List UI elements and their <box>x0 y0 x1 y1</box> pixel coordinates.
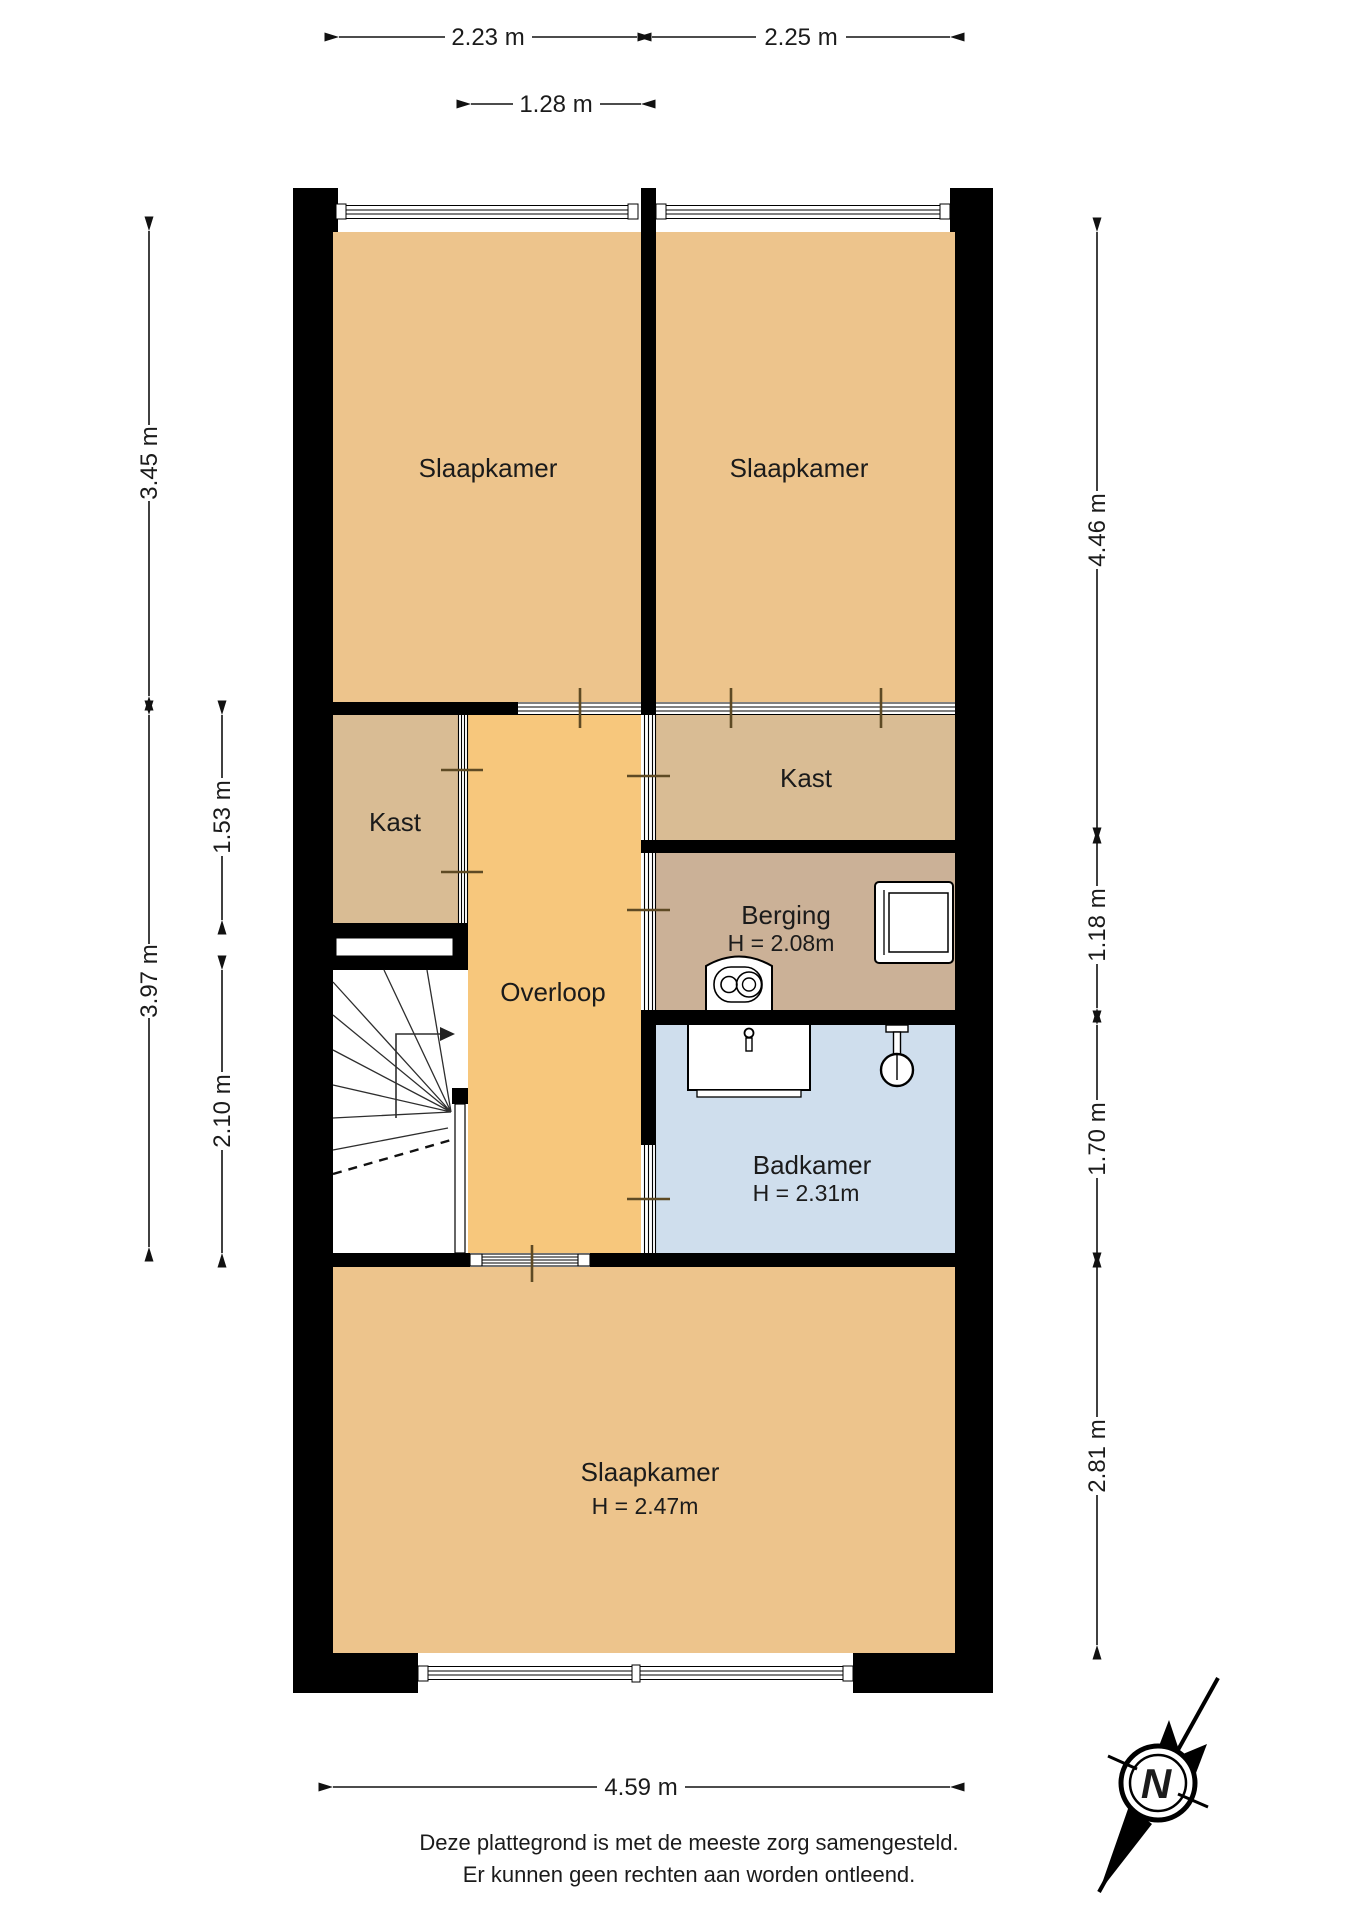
dim-right-top: 4.46 m <box>1084 493 1111 566</box>
wall-berging-north <box>641 840 955 853</box>
window-glazing <box>666 206 940 219</box>
wall-bottom-right <box>853 1653 993 1693</box>
label-berging-height: H = 2.08m <box>728 930 835 956</box>
dim-top-left: 2.23 m <box>451 24 524 51</box>
wall-left <box>293 188 333 1693</box>
window-cap <box>418 1666 428 1681</box>
dim-left-inner-bottom: 2.10 m <box>209 1074 236 1147</box>
window-glazing <box>346 206 628 219</box>
dim-top-right: 2.25 m <box>764 24 837 51</box>
wall-top-left <box>293 188 338 232</box>
window-slaapkamer-3 <box>418 1665 853 1682</box>
window-mullion <box>632 1665 640 1682</box>
window-slaapkamer-2 <box>656 204 950 219</box>
door-slaapkamer-3 <box>470 1254 590 1266</box>
toilet-tank <box>886 1025 908 1032</box>
wall-niche <box>336 938 453 956</box>
window-cap <box>628 204 638 219</box>
label-badkamer-height: H = 2.31m <box>753 1180 860 1206</box>
dim-right-berging: 1.18 m <box>1084 888 1111 961</box>
partition-kast-links <box>459 715 468 923</box>
label-slaapkamer-1: Slaapkamer <box>419 453 558 483</box>
window-slaapkamer-1 <box>336 204 638 219</box>
window-cap <box>656 204 666 219</box>
label-slaapkamer-3-height: H = 2.47m <box>592 1493 699 1519</box>
footer: Deze plattegrond is met de meeste zorg s… <box>419 1830 958 1887</box>
wall-right <box>955 188 993 1693</box>
label-slaapkamer-2: Slaapkamer <box>730 453 869 483</box>
dim-top-overloop: 1.28 m <box>519 91 592 118</box>
label-badkamer: Badkamer <box>753 1150 872 1180</box>
stair-handrail <box>455 1104 465 1253</box>
footer-line-2: Er kunnen geen rechten aan worden ontlee… <box>463 1862 916 1887</box>
partition-overloop-kast <box>645 715 656 840</box>
partition-overloop-berging <box>645 853 656 1010</box>
wall-berging-south <box>641 1010 955 1025</box>
wall-hall-south-left <box>333 1253 470 1267</box>
wall-hall-south-right <box>590 1253 955 1267</box>
sink-plinth <box>697 1090 801 1097</box>
faucet-stem <box>746 1038 752 1051</box>
window-cap <box>336 204 346 219</box>
door-cap <box>470 1254 482 1266</box>
wall-bedroom1-south <box>333 702 518 715</box>
faucet-icon <box>745 1029 754 1038</box>
wall-top-right <box>950 188 993 232</box>
stairwell-area <box>333 970 464 1253</box>
floor-plan-drawing: Slaapkamer Slaapkamer Kast Kast Overloop… <box>0 0 1358 1920</box>
window-cap <box>843 1666 853 1681</box>
label-kast-rechts: Kast <box>780 763 833 793</box>
partition-kast-rechts-front <box>656 703 955 715</box>
door-cap <box>578 1254 590 1266</box>
dim-left-outer-bottom: 3.97 m <box>136 944 163 1017</box>
washer <box>875 882 953 963</box>
window-cap <box>940 204 950 219</box>
mv-unit <box>706 957 772 1012</box>
label-berging: Berging <box>741 900 831 930</box>
dim-right-bottom: 2.81 m <box>1084 1419 1111 1492</box>
footer-line-1: Deze plattegrond is met de meeste zorg s… <box>419 1830 958 1855</box>
bathroom-sink <box>688 1024 810 1097</box>
compass-icon: N <box>1099 1678 1218 1892</box>
wall-between-bedrooms <box>641 188 656 715</box>
dim-right-badkamer: 1.70 m <box>1084 1102 1111 1175</box>
dim-left-inner-top: 1.53 m <box>209 780 236 853</box>
washer-drum <box>889 893 948 952</box>
label-kast-links: Kast <box>369 807 422 837</box>
label-slaapkamer-3: Slaapkamer <box>581 1457 720 1487</box>
floor-plan-page: Slaapkamer Slaapkamer Kast Kast Overloop… <box>0 0 1358 1920</box>
dim-bottom: 4.59 m <box>604 1774 677 1801</box>
compass-north-label: N <box>1141 1760 1173 1807</box>
wall-bottom-left <box>293 1653 418 1693</box>
label-overloop: Overloop <box>500 977 606 1007</box>
wall-stair-rail-stub <box>452 1088 468 1104</box>
wall-badkamer-west <box>641 1025 656 1145</box>
dim-left-outer-top: 3.45 m <box>136 426 163 499</box>
